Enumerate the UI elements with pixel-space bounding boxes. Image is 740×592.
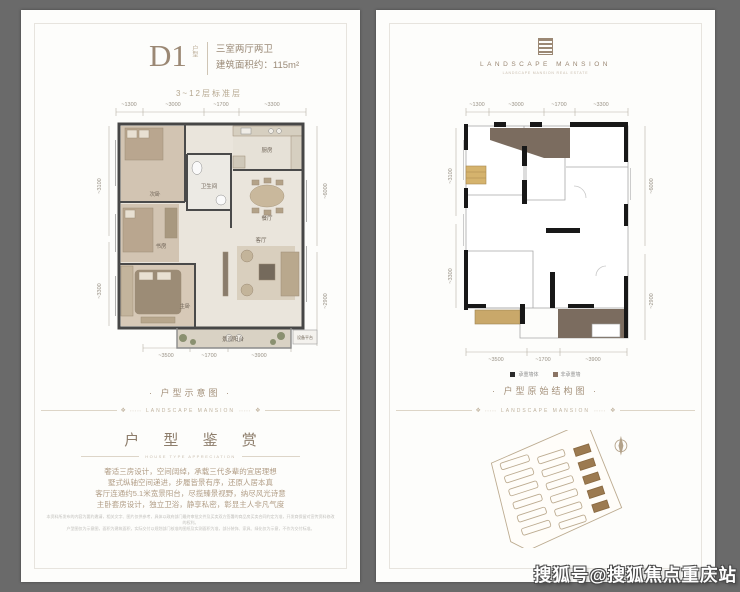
ornament-band: ❖ ▫▫▫▫▫ LANDSCAPE MANSION ▫▫▫▫▫ ❖ <box>396 407 695 414</box>
svg-text:厨房: 厨房 <box>261 146 273 154</box>
subtitle-line <box>81 456 139 457</box>
svg-text:书房: 书房 <box>155 242 167 250</box>
brand-name: LANDSCAPE MANSION <box>376 61 715 68</box>
svg-text:~3900: ~3900 <box>251 353 266 359</box>
diamond-ornament-icon: ❖ <box>610 407 615 414</box>
dotted-ornament-icon: ▫▫▫▫▫ <box>594 408 606 413</box>
legend-item: 非承重墙 <box>553 371 581 378</box>
svg-text:~1700: ~1700 <box>551 102 566 108</box>
svg-text:~3300: ~3300 <box>448 268 454 283</box>
brand-tagline: LANDSCAPE MANSION REAL ESTATE <box>376 71 715 75</box>
svg-text:景观阳台: 景观阳台 <box>222 335 245 343</box>
appreciation-copy: 奢适三房设计，空间阔绰，承载三代多辈的宜居理想 墅式纵轴空间递进，步履皆景有序，… <box>21 466 360 510</box>
svg-text:~3900: ~3900 <box>585 357 600 363</box>
left-panel: D1 户型 三室两厅两卫 建筑面积约：115m² 3~12层标准层 ~1300 … <box>21 10 360 582</box>
diamond-ornament-icon: ❖ <box>255 407 260 414</box>
bearing-wall-swatch-icon <box>510 372 515 377</box>
appreciation-title: 户 型 鉴 赏 <box>21 429 360 450</box>
dotted-ornament-icon: ▫▫▫▫▫ <box>485 408 497 413</box>
svg-text:~3000: ~3000 <box>165 102 180 108</box>
svg-text:~3300: ~3300 <box>97 283 103 298</box>
svg-text:~3500: ~3500 <box>158 353 173 359</box>
dotted-ornament-icon: ▫▫▫▫▫ <box>130 408 142 413</box>
svg-text:~1300: ~1300 <box>121 102 136 108</box>
copy-line: 客厅连通约5.1米宽景阳台，尽揽臻景视野，纳尽风光诗意 <box>21 488 360 499</box>
svg-text:~3500: ~3500 <box>488 357 503 363</box>
structural-floor-plan: ~1300 ~3000 ~1700 ~3300 ~3500 ~1700 ~390… <box>446 96 696 366</box>
svg-text:客厅: 客厅 <box>255 236 267 244</box>
disclaimer-line: 户型图仅为示意图，面积为建筑面积，实际交付以规划部门核准的图纸及实测面积为准，部… <box>45 526 336 532</box>
svg-text:~2900: ~2900 <box>323 293 329 308</box>
furnished-floor-plan: ~1300 ~3000 ~1700 ~3300 ~3500 ~1700 ~390… <box>81 96 341 362</box>
compass-icon <box>615 436 627 456</box>
wall-legend: 承重墙体 非承重墙 <box>376 371 715 378</box>
header-divider <box>207 42 208 75</box>
svg-text:主卧: 主卧 <box>179 302 191 310</box>
band-line <box>265 410 341 411</box>
svg-text:~3300: ~3300 <box>264 102 279 108</box>
nonbearing-wall-swatch-icon <box>553 372 558 377</box>
right-plan-caption: · 户型原始结构图 · <box>376 384 715 397</box>
band-line <box>396 410 472 411</box>
svg-text:~2900: ~2900 <box>649 293 655 308</box>
ornament-band: ❖ ▫▫▫▫▫ LANDSCAPE MANSION ▫▫▫▫▫ ❖ <box>41 407 340 414</box>
svg-text:次卧: 次卧 <box>149 190 161 198</box>
svg-text:~6000: ~6000 <box>323 183 329 198</box>
copy-line: 主卧套房设计，独立卫浴，静享私密，彰显主人非凡气度 <box>21 499 360 510</box>
copy-line: 奢适三房设计，空间阔绰，承载三代多辈的宜居理想 <box>21 466 360 477</box>
subtitle-line <box>242 456 300 457</box>
unit-area: 建筑面积约：115m² <box>216 58 299 74</box>
band-line <box>41 410 117 411</box>
diamond-ornament-icon: ❖ <box>121 407 126 414</box>
svg-text:~6000: ~6000 <box>649 178 655 193</box>
disclaimer: 本资料所发布的内容为要约邀请，相关文字、图片仅供参考，具体以政府部门最终审批文件… <box>45 514 336 532</box>
disclaimer-line: 本资料所发布的内容为要约邀请，相关文字、图片仅供参考，具体以政府部门最终审批文件… <box>45 514 336 526</box>
svg-text:~3000: ~3000 <box>508 102 523 108</box>
svg-text:~3100: ~3100 <box>448 168 454 183</box>
left-plan-caption: · 户型示意图 · <box>21 386 360 399</box>
svg-text:~1300: ~1300 <box>469 102 484 108</box>
svg-text:~3100: ~3100 <box>97 178 103 193</box>
watermark: 搜狐号@搜狐焦点重庆站 <box>534 562 737 587</box>
tan-fill-box <box>466 166 486 184</box>
band-text: LANDSCAPE MANSION <box>501 408 590 414</box>
copy-line: 墅式纵轴空间递进，步履皆景有序，还原人居本真 <box>21 477 360 488</box>
legend-item: 承重墙体 <box>510 371 538 378</box>
site-plan <box>474 430 644 548</box>
svg-text:卫生间: 卫生间 <box>201 182 218 190</box>
brand-logo-icon <box>538 38 553 55</box>
unit-summary: 三室两厅两卫 <box>216 42 299 58</box>
unit-meta: 三室两厅两卫 建筑面积约：115m² <box>216 40 299 74</box>
dotted-ornament-icon: ▫▫▫▫▫ <box>239 408 251 413</box>
right-panel: LANDSCAPE MANSION LANDSCAPE MANSION REAL… <box>376 10 715 582</box>
svg-text:~3300: ~3300 <box>593 102 608 108</box>
svg-text:设备平台: 设备平台 <box>297 334 313 340</box>
unit-header: D1 户型 三室两厅两卫 建筑面积约：115m² <box>149 40 299 75</box>
svg-text:~1700: ~1700 <box>201 353 216 359</box>
unit-code-note: 户型 <box>190 45 199 57</box>
band-text: LANDSCAPE MANSION <box>146 408 235 414</box>
appreciation-subtitle: HOUSE TYPE APPRECIATION <box>21 454 360 459</box>
tan-fill-balcony-left <box>475 310 520 324</box>
band-line <box>620 410 696 411</box>
svg-text:餐厅: 餐厅 <box>261 214 273 222</box>
brand-block: LANDSCAPE MANSION LANDSCAPE MANSION REAL… <box>376 38 715 75</box>
diamond-ornament-icon: ❖ <box>476 407 481 414</box>
unit-code: D1 <box>149 40 187 71</box>
svg-text:~1700: ~1700 <box>213 102 228 108</box>
svg-text:~1700: ~1700 <box>535 357 550 363</box>
